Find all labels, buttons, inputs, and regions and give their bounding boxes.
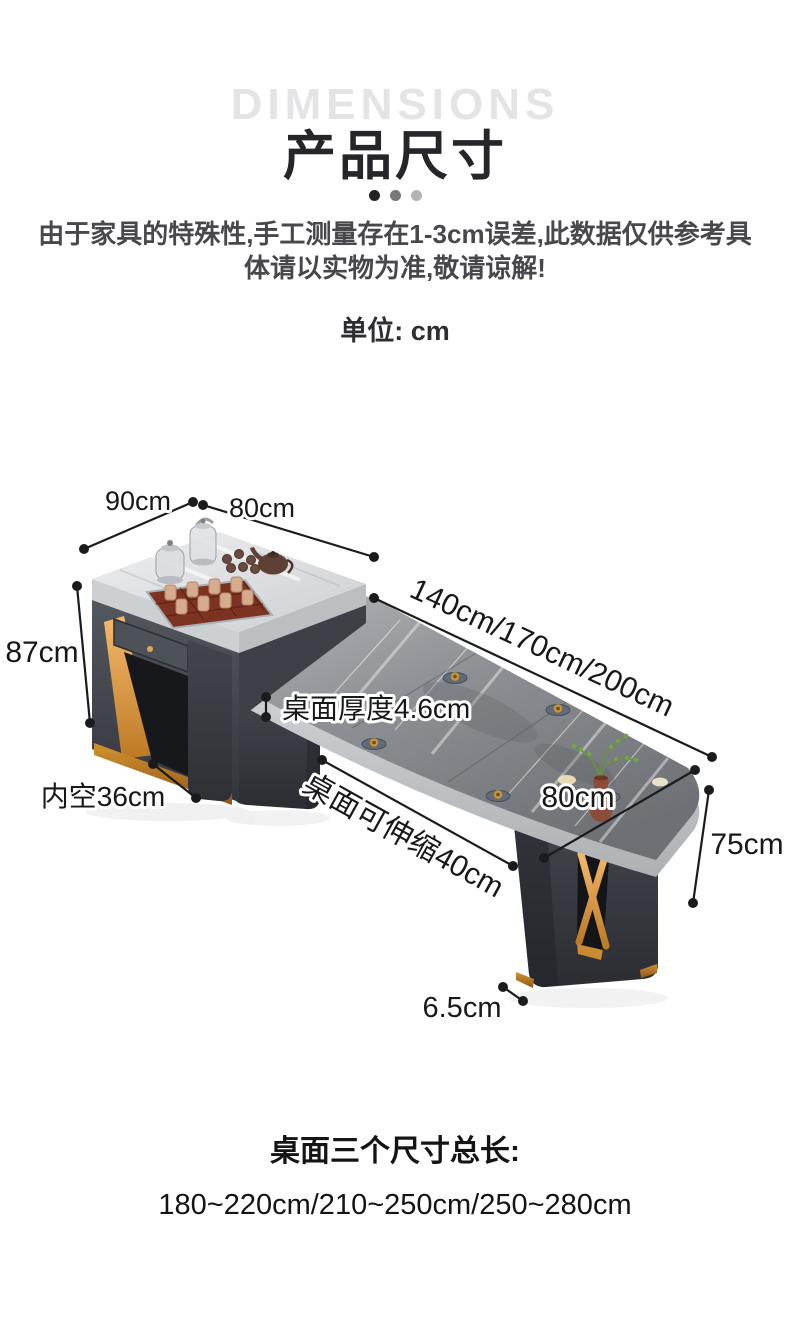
measurement-disclaimer: 由于家具的特殊性,手工测量存在1-3cm误差,此数据仅供参考具 体请以实物为准,… [0, 217, 790, 285]
dot-icon [390, 190, 401, 201]
total-length-value: 180~220cm/210~250cm/250~280cm [0, 1189, 790, 1222]
dim-inner-clearance-label: 内空36cm [41, 781, 165, 812]
dot-icon [411, 190, 422, 201]
unit-label: 单位: cm [0, 309, 790, 348]
cabinet-leg-column [188, 640, 232, 801]
drawer-knob [147, 646, 153, 652]
dim-cabinet-depth: 90cm [79, 486, 198, 554]
dim-top-thickness-label: 桌面厚度4.6cm [282, 693, 470, 724]
dots-divider [0, 188, 790, 206]
dim-foot-height-label: 6.5cm [423, 992, 502, 1024]
disclaimer-line-2: 体请以实物为准,敬请谅解! [0, 251, 790, 285]
dim-cabinet-depth-label: 90cm [105, 486, 171, 516]
teacup-saucer [546, 704, 570, 715]
teacup-saucer [486, 790, 510, 801]
page-title: 产品尺寸 [0, 114, 790, 190]
dim-table-height: 75cm [688, 785, 784, 908]
teacup-saucer [362, 738, 386, 749]
total-length-label: 桌面三个尺寸总长: [0, 1126, 790, 1170]
dim-cabinet-width-label: 80cm [229, 493, 295, 523]
dim-table-depth-label: 80cm [541, 781, 614, 814]
glass-kettle-tall [190, 519, 216, 566]
dim-table-height-label: 75cm [710, 828, 783, 861]
dimension-diagram: 90cm 80cm 87cm 内空36cm 140cm/170cm/200cm [0, 460, 790, 1080]
product-dimensions-page: DIMENSIONS 产品尺寸 由于家具的特殊性,手工测量存在1-3cm误差,此… [0, 0, 790, 1326]
dim-cabinet-height: 87cm [5, 581, 95, 728]
dim-foot-height: 6.5cm [423, 982, 528, 1024]
teacup-saucer [443, 672, 467, 683]
dim-cabinet-height-label: 87cm [5, 636, 78, 669]
dim-top-thickness: 桌面厚度4.6cm [261, 692, 470, 724]
dot-icon [369, 190, 380, 201]
disclaimer-line-1: 由于家具的特殊性,手工测量存在1-3cm误差,此数据仅供参考具 [0, 217, 790, 251]
